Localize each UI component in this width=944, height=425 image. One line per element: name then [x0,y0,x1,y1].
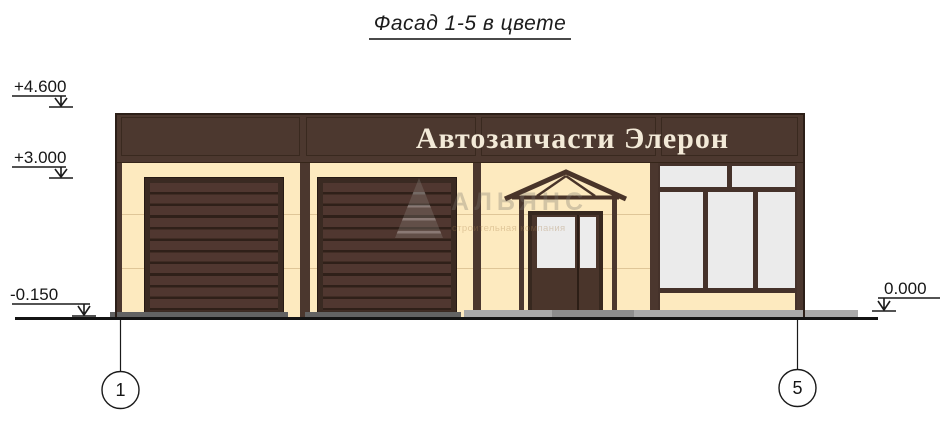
axis-number-1: 1 [115,380,125,400]
elevation-arrow [12,304,96,316]
pilaster [473,163,481,318]
facade-drawing: Фасад 1-5 в цвете Автозапчасти Элерон [0,0,944,425]
axis-1: 1 [102,320,139,409]
drawing-title-text: Фасад 1-5 в цвете [369,12,572,40]
door-glass-right [580,217,596,268]
transom-window [660,166,727,187]
entrance-ramp [552,310,634,318]
elevation-marker-parapet: +4.600 [12,77,73,107]
garage-door-2 [318,178,456,316]
axis-bubble-1 [102,372,139,409]
elevation-value: +4.600 [14,77,66,96]
building-elevation: Автозапчасти Элерон [115,113,805,318]
spandrel-panel [660,293,795,311]
drawing-title: Фасад 1-5 в цвете [300,12,640,40]
pilaster-right-edge [797,163,805,318]
entrance-door [528,211,603,315]
axis-bubble-5 [779,370,816,407]
sign-band: Автозапчасти Элерон [115,113,805,163]
garage-threshold-1 [110,312,288,318]
elevation-value: +3.000 [14,148,66,167]
sidewalk-pavement [464,310,858,318]
transom-window [732,166,795,187]
storefront-window [660,192,703,288]
elevation-arrow [12,96,73,107]
storefront-frame [658,163,797,313]
sign-band-panel [121,117,300,156]
garage-threshold-2 [305,312,461,318]
elevation-arrow [12,167,73,178]
pilaster [300,163,310,318]
elevation-marker-ground: -0.150 [10,285,96,316]
entrance-post-right [612,197,617,313]
elevation-arrow [872,298,940,311]
elevation-value: 0.000 [884,279,927,298]
storefront-window [758,192,795,288]
elevation-marker-band: +3.000 [12,148,73,178]
entrance-post-left [519,197,524,313]
door-leaf-divider [577,215,579,311]
elevation-marker-entry: 0.000 [872,279,940,311]
axis-5: 5 [779,320,816,407]
shop-sign-text: Автозапчасти Элерон [400,116,745,160]
storefront-window [708,192,753,288]
door-glass-left [537,217,575,268]
garage-door-1 [145,178,283,316]
pilaster-left-edge [115,163,122,318]
axis-number-5: 5 [792,378,802,398]
elevation-value: -0.150 [10,285,58,304]
pilaster [650,163,658,318]
